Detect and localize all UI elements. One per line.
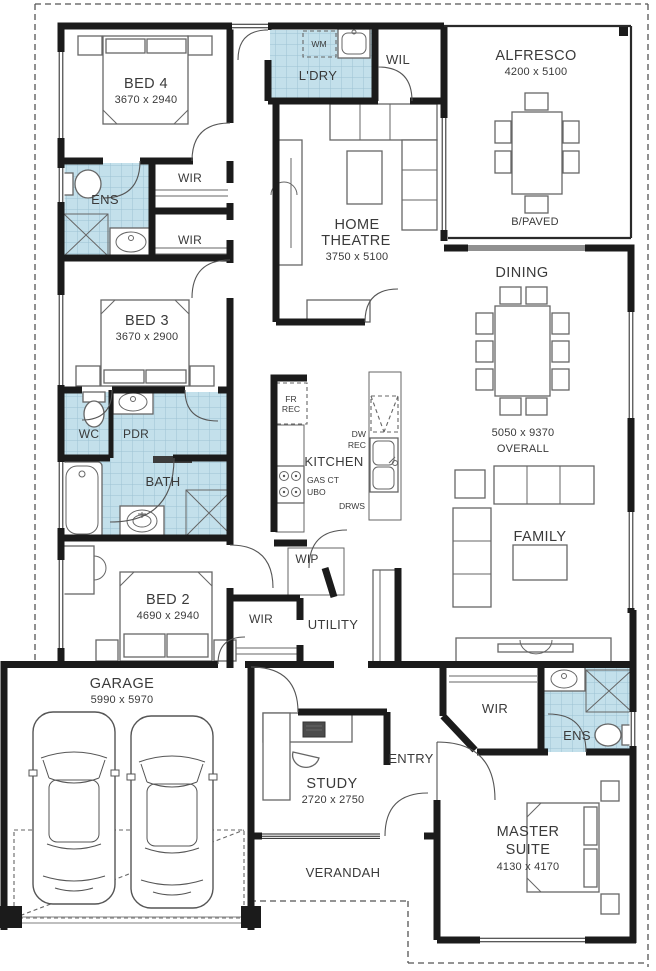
label-alfresco-dims: 4200 x 5100 <box>505 66 568 78</box>
label-gas-ct: GAS CT <box>307 475 340 485</box>
label-master-2: SUITE <box>506 842 551 858</box>
label-wir-a: WIR <box>178 171 202 185</box>
label-garage-dims: 5990 x 5970 <box>91 694 154 706</box>
label-ens-front: ENS <box>91 192 119 207</box>
label-family: FAMILY <box>514 529 567 545</box>
label-bed2-dims: 4690 x 2940 <box>137 610 200 622</box>
label-pdr: PDR <box>123 427 149 441</box>
label-home-theatre-dims: 3750 x 5100 <box>326 251 389 263</box>
label-fr-2: REC <box>282 404 300 414</box>
garage-contents <box>14 712 244 918</box>
label-wir-b: WIR <box>178 233 202 247</box>
floor-plan: BED 4 3670 x 2940 L'DRY WM WIL ALFRESCO … <box>0 0 656 971</box>
label-dw-2: REC <box>348 440 366 450</box>
car-icon <box>29 712 119 904</box>
label-garage: GARAGE <box>90 676 154 692</box>
floor-plan-drawing: BED 4 3670 x 2940 L'DRY WM WIL ALFRESCO … <box>0 0 656 971</box>
label-home-theatre-1: HOME <box>334 217 379 233</box>
label-study-dims: 2720 x 2750 <box>302 794 365 806</box>
label-study: STUDY <box>306 776 357 792</box>
label-overall: OVERALL <box>497 443 549 455</box>
label-wir-hall: WIR <box>249 612 273 626</box>
label-laundry: L'DRY <box>299 68 337 83</box>
label-overall-dims: 5050 x 9370 <box>492 427 555 439</box>
label-wil: WIL <box>386 52 410 67</box>
alfresco-table <box>495 93 579 213</box>
label-bed4-dims: 3670 x 2940 <box>115 94 178 106</box>
label-alfresco: ALFRESCO <box>495 48 576 64</box>
label-master-dims: 4130 x 4170 <box>497 861 560 873</box>
label-master-1: MASTER <box>497 824 560 840</box>
label-fr-1: FR <box>285 394 296 404</box>
label-bed3-dims: 3670 x 2900 <box>116 331 179 343</box>
label-kitchen: KITCHEN <box>304 454 363 469</box>
label-dining: DINING <box>495 265 548 281</box>
label-utility: UTILITY <box>308 617 359 632</box>
dining-table <box>476 287 569 415</box>
label-wir-master: WIR <box>482 701 508 716</box>
label-ubo: UBO <box>307 487 326 497</box>
label-bpaved: B/PAVED <box>511 216 558 228</box>
label-wc: WC <box>79 427 100 441</box>
label-dw-1: DW <box>352 429 367 439</box>
car-icon <box>127 716 217 908</box>
label-bed3: BED 3 <box>125 313 169 329</box>
label-entry: ENTRY <box>388 751 433 766</box>
label-verandah: VERANDAH <box>306 865 381 880</box>
label-wip: WIP <box>295 552 318 566</box>
label-bed4: BED 4 <box>124 76 168 92</box>
label-washing-machine: WM <box>311 39 326 49</box>
label-home-theatre-2: THEATRE <box>321 233 390 249</box>
label-bed2: BED 2 <box>146 592 190 608</box>
label-drws: DRWS <box>339 501 365 511</box>
label-ens-master: ENS <box>563 728 591 743</box>
home-theatre-furniture <box>271 104 437 322</box>
laundry-fixtures <box>338 29 370 58</box>
label-bath: BATH <box>146 474 181 489</box>
family-furniture <box>453 466 611 662</box>
